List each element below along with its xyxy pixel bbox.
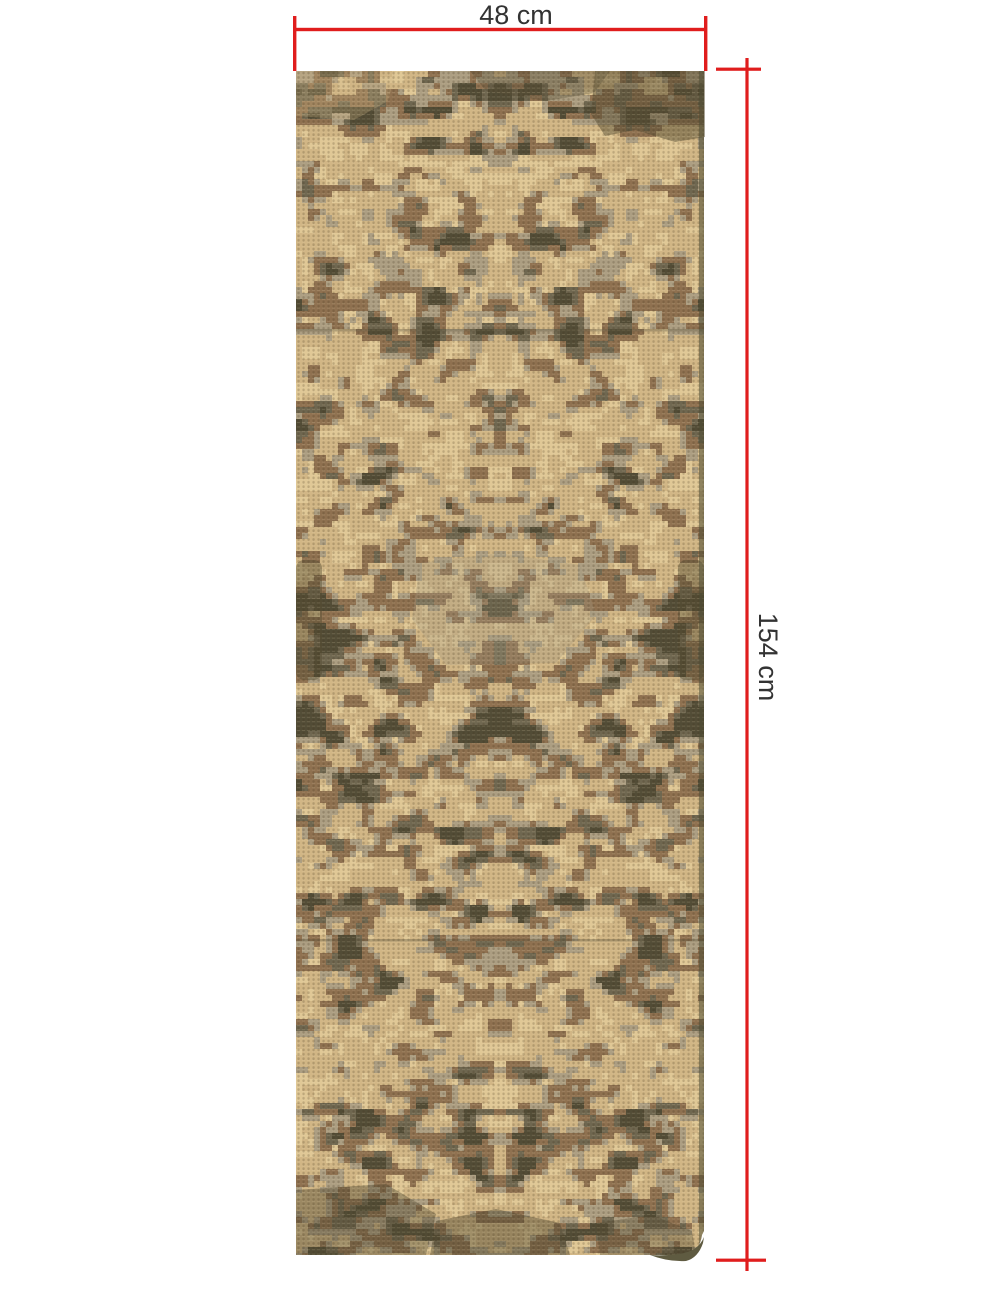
svg-text:48 cm: 48 cm	[479, 0, 553, 30]
svg-text:154 cm: 154 cm	[753, 613, 783, 702]
